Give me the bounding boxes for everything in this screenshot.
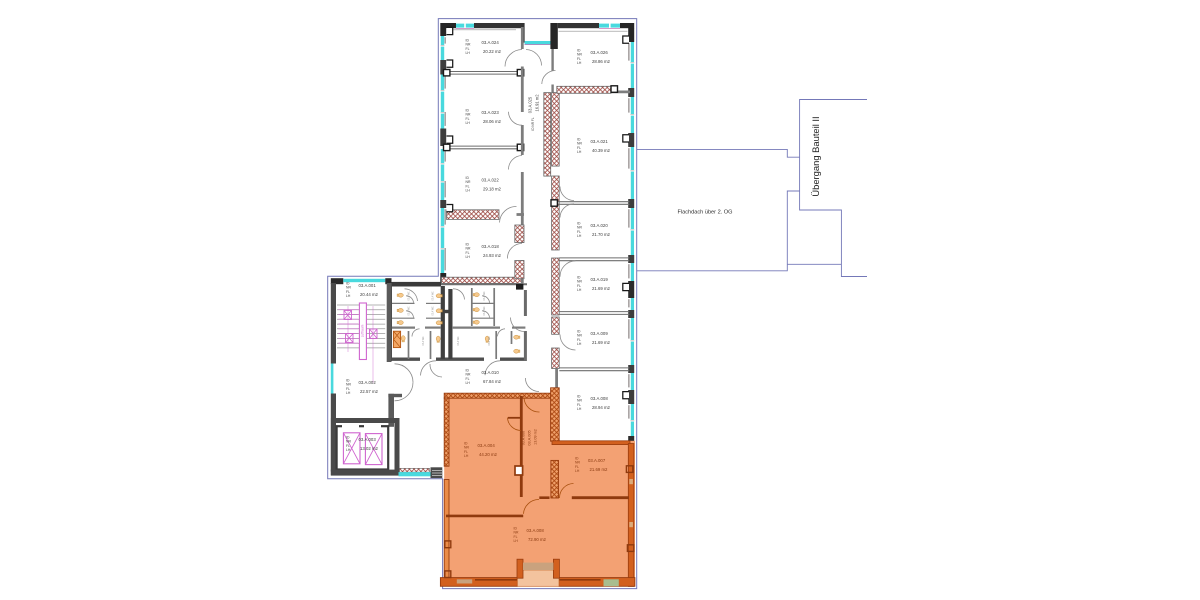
svg-text:44.20 m2: 44.20 m2	[479, 452, 498, 457]
svg-text:03.A.001: 03.A.001	[359, 283, 377, 288]
svg-text:LH: LH	[466, 51, 471, 55]
svg-text:24.93 m2: 24.93 m2	[483, 253, 502, 258]
svg-text:03.A.021: 03.A.021	[591, 139, 609, 144]
svg-text:ID NR FL: ID NR FL	[531, 117, 535, 131]
svg-text:LH: LH	[577, 342, 582, 346]
svg-text:21.69 m2: 21.69 m2	[592, 286, 611, 291]
svg-text:40.39 m2: 40.39 m2	[592, 148, 611, 153]
svg-text:03.A.007: 03.A.007	[588, 458, 606, 463]
svg-text:72.90 m2: 72.90 m2	[528, 537, 547, 542]
svg-text:03.A WC: 03.A WC	[488, 336, 491, 345]
svg-text:03.A.022: 03.A.022	[482, 177, 500, 182]
svg-text:28.06 m2: 28.06 m2	[483, 119, 502, 124]
svg-text:03.A.004: 03.A.004	[478, 443, 496, 448]
svg-text:03.A.003: 03.A.003	[359, 437, 377, 442]
svg-text:LH: LH	[577, 407, 582, 411]
svg-text:16.91 m2: 16.91 m2	[535, 94, 540, 112]
svg-text:LH: LH	[466, 381, 471, 385]
svg-text:67.84 m2: 67.84 m2	[483, 379, 502, 384]
svg-text:03.A.002: 03.A.002	[359, 380, 377, 385]
svg-text:20.22 m2: 20.22 m2	[483, 49, 502, 54]
svg-text:21.70 m2: 21.70 m2	[592, 232, 611, 237]
svg-text:03.A WC: 03.A WC	[432, 306, 435, 315]
svg-text:03.A.008: 03.A.008	[527, 528, 545, 533]
svg-text:LH: LH	[466, 121, 471, 125]
svg-text:03.A WC: 03.A WC	[422, 336, 425, 345]
svg-text:03.A WC: 03.A WC	[432, 291, 435, 300]
svg-text:LH: LH	[346, 391, 351, 395]
svg-text:13.02 m2: 13.02 m2	[360, 446, 379, 451]
svg-text:13.09 m2: 13.09 m2	[534, 429, 538, 445]
svg-text:03.A.024: 03.A.024	[482, 40, 500, 45]
svg-text:Übergang Bauteil II: Übergang Bauteil II	[810, 116, 821, 196]
svg-text:03.A WC: 03.A WC	[457, 336, 460, 345]
svg-text:21.69 m2: 21.69 m2	[592, 340, 611, 345]
svg-text:LH: LH	[346, 448, 351, 452]
svg-text:LH: LH	[577, 61, 582, 65]
svg-text:03.A.005: 03.A.005	[528, 430, 532, 445]
svg-text:LH: LH	[514, 539, 519, 543]
svg-text:LH: LH	[577, 234, 582, 238]
svg-text:LH: LH	[577, 288, 582, 292]
svg-text:03.A.025: 03.A.025	[528, 96, 533, 113]
svg-text:Luftraum: Luftraum	[361, 324, 365, 337]
svg-text:28.86 m2: 28.86 m2	[592, 59, 611, 64]
svg-text:21.69 m2: 21.69 m2	[590, 467, 609, 472]
svg-text:LH: LH	[346, 294, 351, 298]
svg-text:03.A.023: 03.A.023	[482, 110, 500, 115]
svg-text:03.A.019: 03.A.019	[591, 277, 609, 282]
svg-text:LH: LH	[575, 469, 580, 473]
svg-text:28.94 m2: 28.94 m2	[592, 405, 611, 410]
svg-text:03.A.010: 03.A.010	[482, 370, 500, 375]
svg-text:29.18 m2: 29.18 m2	[483, 187, 502, 192]
svg-text:LH: LH	[466, 189, 471, 193]
svg-text:03.A.006: 03.A.006	[522, 431, 526, 445]
svg-text:20.44 m2: 20.44 m2	[360, 292, 379, 297]
svg-text:LH: LH	[464, 454, 469, 458]
svg-text:03.A.020: 03.A.020	[591, 223, 609, 228]
svg-text:03.A.008: 03.A.008	[591, 396, 609, 401]
svg-text:22.57 m2: 22.57 m2	[360, 389, 379, 394]
svg-text:03.A.018: 03.A.018	[482, 244, 500, 249]
svg-text:Flachdach über 2. OG: Flachdach über 2. OG	[677, 210, 732, 216]
svg-text:LH: LH	[577, 150, 582, 154]
svg-text:LH: LH	[466, 255, 471, 259]
svg-text:03.A.026: 03.A.026	[591, 50, 609, 55]
svg-text:03.A.009: 03.A.009	[591, 331, 609, 336]
